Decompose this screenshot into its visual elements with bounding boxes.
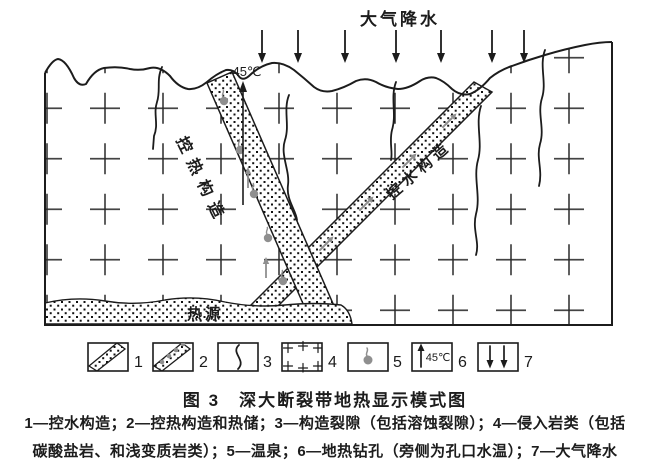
legend-item-heat-structure: 2 xyxy=(153,342,208,371)
legend-number: 1 xyxy=(134,354,143,371)
legend-number: 7 xyxy=(524,354,533,371)
legend-number: 4 xyxy=(328,354,337,371)
down-arrow-icon xyxy=(341,30,349,63)
intrusive-rock-plus-symbols xyxy=(45,42,612,325)
down-arrow-icon xyxy=(488,30,496,63)
down-arrow-icon xyxy=(520,30,528,63)
precipitation-label: 大气降水 xyxy=(360,9,440,29)
legend-number: 3 xyxy=(263,354,272,371)
down-arrow-icon xyxy=(258,30,266,63)
legend-item-intrusive-rock: 4 xyxy=(282,342,337,373)
legend-description-line-1: 1—控水构造；2—控热构造和热储；3—构造裂隙（包括溶蚀裂隙）；4—侵入岩类（包… xyxy=(0,412,650,433)
legend: 1 2 3 xyxy=(88,342,533,373)
geothermal-cross-section-figure: 热源 45℃ 大气降水 控热构造 控水构造 xyxy=(0,0,650,380)
legend-item-precipitation: 7 xyxy=(478,343,533,371)
precipitation-arrows xyxy=(258,30,528,63)
legend-number: 6 xyxy=(458,354,467,371)
legend-description-line-2: 碳酸盐岩、和浅变质岩类）；5—温泉；6—地热钻孔（旁侧为孔口水温）；7—大气降水 xyxy=(0,440,650,461)
legend-number: 5 xyxy=(393,354,402,371)
legend-item-fissure: 3 xyxy=(218,343,272,371)
down-arrow-icon xyxy=(294,30,302,63)
legend-item-hot-spring: 5 xyxy=(348,343,402,371)
figure-page: 热源 45℃ 大气降水 控热构造 控水构造 xyxy=(0,0,650,475)
rock-mass xyxy=(45,42,612,325)
figure-caption: 图 3 深大断裂带地热显示模式图 xyxy=(0,386,650,411)
legend-number: 2 xyxy=(199,354,208,371)
heat-source-label: 热源 xyxy=(187,305,223,323)
down-arrow-icon xyxy=(392,30,400,63)
legend-borehole-temp: 45℃ xyxy=(426,352,451,364)
legend-item-borehole: 45℃ 6 xyxy=(412,343,467,371)
legend-item-water-structure: 1 xyxy=(88,343,143,371)
down-arrow-icon xyxy=(437,30,445,63)
